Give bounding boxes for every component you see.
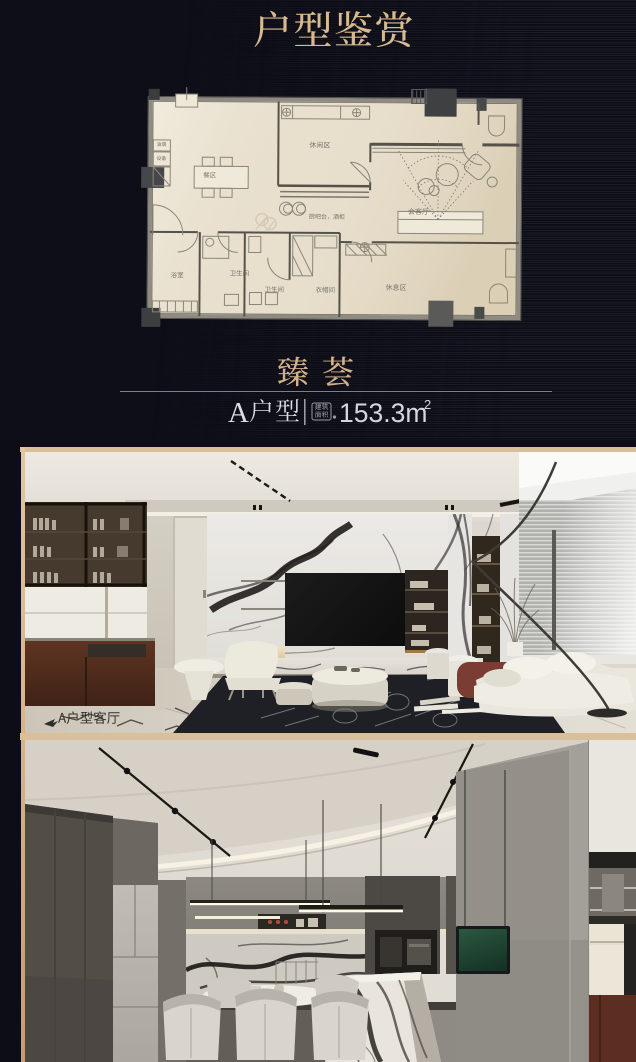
svg-text:2: 2 — [424, 397, 431, 412]
svg-text:A: A — [228, 397, 249, 429]
svg-text:153.3m: 153.3m — [339, 398, 427, 428]
